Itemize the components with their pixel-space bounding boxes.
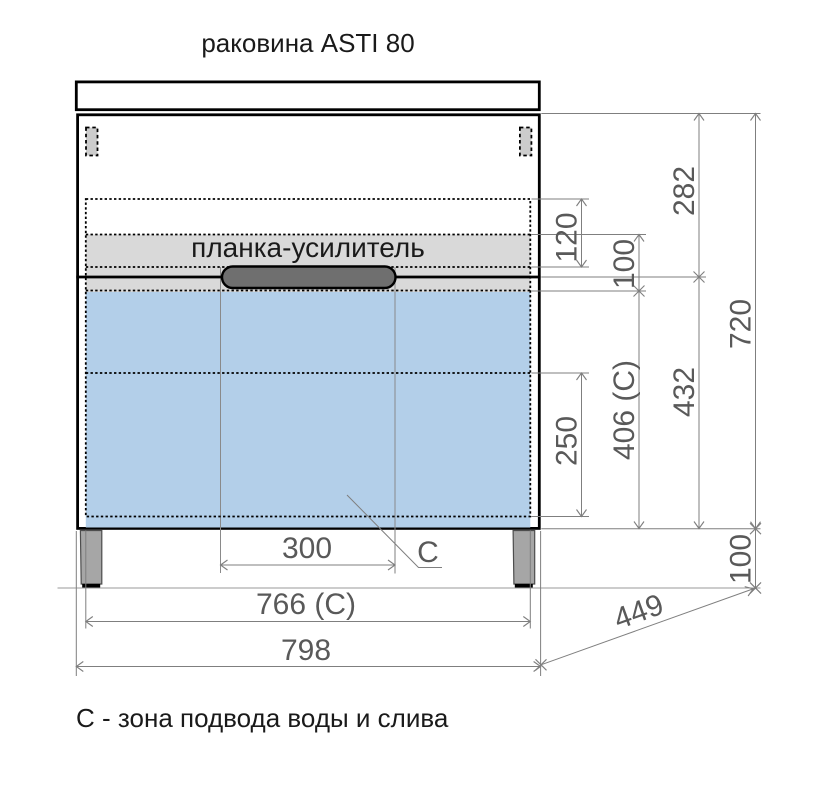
- svg-text:449: 449: [610, 588, 668, 636]
- svg-text:766 (C): 766 (C): [256, 588, 356, 621]
- svg-text:720: 720: [725, 299, 758, 349]
- svg-text:798: 798: [281, 634, 331, 667]
- svg-text:раковина ASTI 80: раковина ASTI 80: [201, 28, 414, 58]
- svg-text:300: 300: [282, 532, 332, 565]
- svg-text:планка-усилитель: планка-усилитель: [191, 232, 425, 263]
- svg-text:120: 120: [551, 212, 584, 262]
- svg-text:282: 282: [668, 166, 701, 216]
- svg-text:С - зона подвода воды и слива: С - зона подвода воды и слива: [76, 703, 449, 733]
- svg-text:100: 100: [725, 534, 758, 584]
- svg-text:250: 250: [551, 416, 584, 466]
- svg-text:406 (C): 406 (C): [608, 360, 641, 460]
- svg-text:C: C: [417, 536, 439, 569]
- svg-text:100: 100: [608, 239, 641, 289]
- svg-text:432: 432: [668, 367, 701, 417]
